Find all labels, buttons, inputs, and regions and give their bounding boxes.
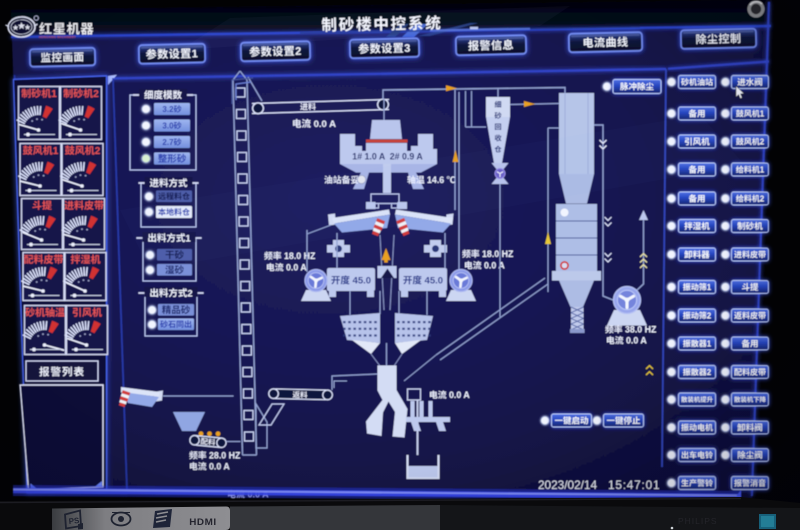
svg-text:PHILIPS: PHILIPS xyxy=(678,516,718,526)
svg-text:HDMI: HDMI xyxy=(189,517,216,528)
